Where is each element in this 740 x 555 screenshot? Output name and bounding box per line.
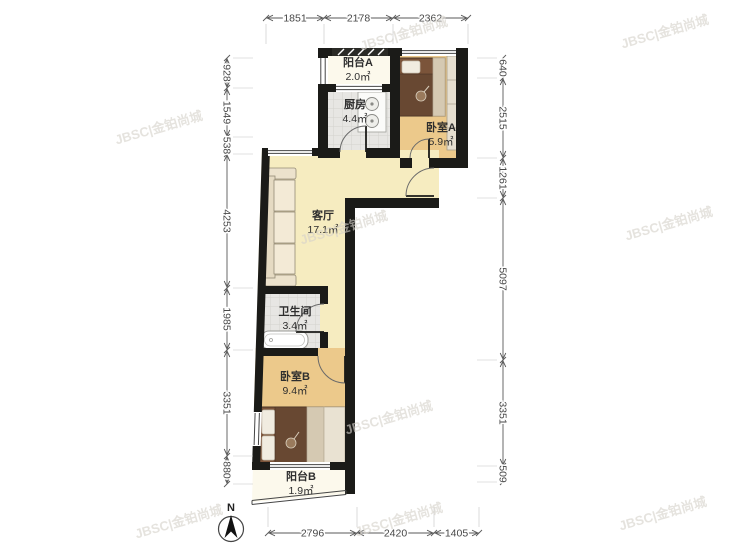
bed-b-icon (259, 407, 345, 463)
dimension-label: 2796 (301, 527, 325, 539)
room-name-bathroom: 卫生间 (279, 304, 312, 318)
kitchen-right-wall (390, 56, 400, 158)
watermark-text: JBSC|金铂尚城 (133, 502, 224, 541)
dimension-label: 509 (497, 465, 509, 483)
watermark-text: JBSC|金铂尚城 (617, 494, 708, 533)
room-area-bedroom-b: 9.4㎡ (282, 385, 308, 397)
room-name-balcony-a: 阳台A (343, 55, 373, 69)
room-name-bedroom-a: 卧室A (426, 120, 456, 134)
room-name-kitchen: 厨房 (344, 97, 366, 111)
dimension-label: 5097 (497, 267, 509, 291)
watermark-text: JBSC|金铂尚城 (113, 108, 204, 147)
dimension-label: 1851 (283, 12, 307, 24)
compass-icon: N (219, 502, 244, 542)
dimension-label: 1261 (497, 166, 509, 190)
room-name-bedroom-b: 卧室B (280, 369, 310, 383)
dimension-label: 3351 (221, 391, 233, 415)
room-area-bedroom-a: 5.9㎡ (428, 136, 454, 148)
balcony-kitchen-divider-window (336, 84, 382, 92)
bedroom-b-balcony-slider (270, 462, 330, 470)
watermark-text: JBSC|金铂尚城 (623, 204, 714, 243)
bathroom-bottom-wall (256, 348, 318, 356)
bathtub-icon (261, 331, 308, 349)
dimension-label: 2178 (347, 12, 371, 24)
balcony-b-right-wall (345, 470, 355, 494)
watermark-text: JBSC|金铂尚城 (343, 398, 434, 437)
dimension-label: 3351 (497, 401, 509, 425)
room-name-living-room: 客厅 (311, 208, 334, 222)
floorplan-canvas: 阳台A 2.0㎡ 厨房 4.4㎡ 卧室A 5.9㎡ 客厅 17.1㎡ 卫生间 3… (0, 0, 740, 555)
dimension-label: 640 (497, 59, 509, 77)
room-area-balcony-a: 2.0㎡ (345, 71, 371, 83)
floorplan-svg: 阳台A 2.0㎡ 厨房 4.4㎡ 卧室A 5.9㎡ 客厅 17.1㎡ 卫生间 3… (0, 0, 740, 555)
sofa-icon (265, 168, 296, 286)
bed-a-icon (399, 58, 445, 116)
bedroom-a-window (402, 48, 456, 56)
dimension-label: 1405 (445, 527, 469, 539)
room-name-balcony-b: 阳台B (286, 469, 316, 483)
room-area-bathroom: 3.4㎡ (282, 320, 308, 332)
living-step-wall (345, 198, 439, 208)
living-room-window (268, 148, 312, 156)
balcony-a-side-window (318, 58, 328, 84)
dimension-line-right: 6402515126150973351509 (477, 55, 509, 485)
dimension-label: 1549 (221, 101, 233, 125)
room-area-kitchen: 4.4㎡ (342, 113, 368, 125)
watermark-text: JBSC|金铂尚城 (358, 14, 449, 53)
dimension-label: 928 (221, 64, 233, 82)
dimension-label: 4253 (221, 209, 233, 233)
dimension-label: 880 (221, 461, 233, 479)
dimension-label: 2515 (497, 106, 509, 130)
dimension-label: 1985 (221, 307, 233, 331)
room-area-balcony-b: 1.9㎡ (288, 485, 314, 497)
dimension-label: 538 (221, 137, 233, 155)
watermark-text: JBSC|金铂尚城 (619, 12, 710, 51)
bedroom-b-side-window (253, 412, 262, 446)
bedroom-a-right-wall (456, 56, 468, 168)
bathroom-top-wall (262, 286, 328, 294)
compass-north-label: N (227, 502, 235, 514)
balcony-a-railing (332, 48, 388, 56)
